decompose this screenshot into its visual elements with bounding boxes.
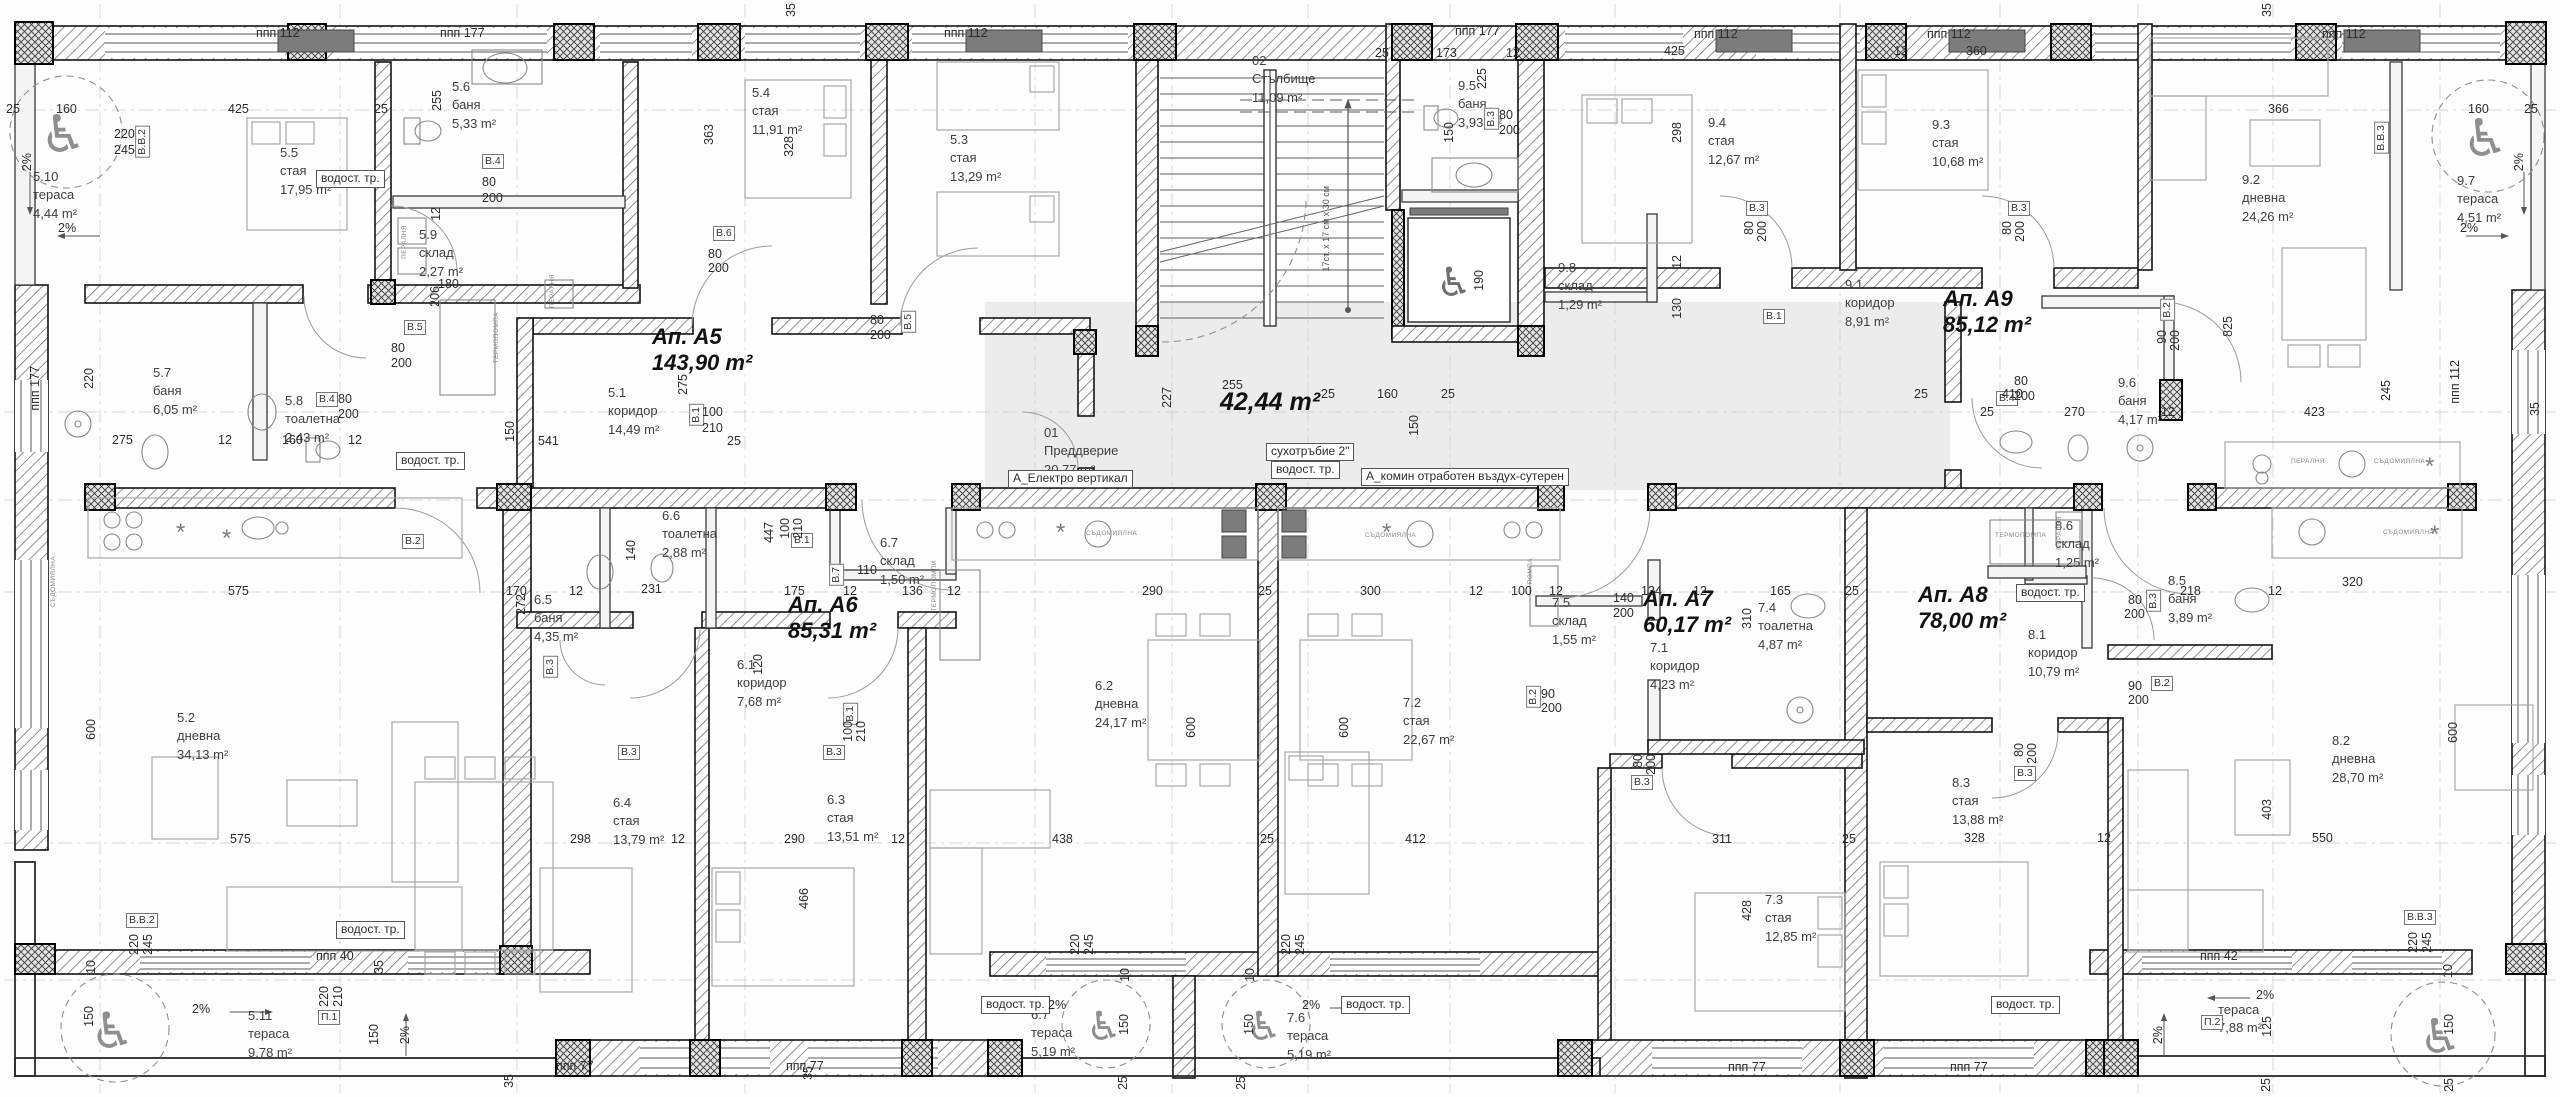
room-label: 5.1 коридор 14,49 m² xyxy=(608,384,659,439)
dimension-label: 80 xyxy=(2000,221,2014,235)
dimension-label: 360 xyxy=(1966,44,1987,58)
shaft-label: ппп 42 xyxy=(2200,949,2238,963)
annotation-box: А_Електро вертикал xyxy=(1008,470,1133,488)
toilet xyxy=(404,118,441,144)
room-label: 02 Стълбище 11,09 m² xyxy=(1252,52,1316,107)
dimension-label: 150 xyxy=(1117,1014,1131,1035)
dimension-label: 35 xyxy=(2528,402,2542,416)
dimension-label: 275 xyxy=(676,374,690,395)
room-label: 7.3 стая 12,85 m² xyxy=(1765,891,1816,946)
room-label: 5.4 стая 11,91 m² xyxy=(752,84,802,139)
dimension-label: 200 xyxy=(2128,693,2149,707)
room-label: 8.1 коридор 10,79 m² xyxy=(2028,626,2079,681)
dimension-label: 245 xyxy=(2420,932,2434,953)
dimension-label: 210 xyxy=(791,518,805,539)
annotation-box: водост. тр. xyxy=(1271,461,1340,479)
dimension-label: 600 xyxy=(1184,717,1198,738)
sofa xyxy=(930,790,1050,954)
dimension-label: 275 xyxy=(112,433,133,447)
dimension-label: 25 xyxy=(1980,405,1994,419)
annotation-box: водост. тр. xyxy=(1991,996,2060,1014)
dimension-label: 200 xyxy=(2124,607,2145,621)
door-tag: B.3 xyxy=(2014,766,2036,781)
dimension-label: 2% xyxy=(2256,988,2274,1002)
dimension-label: 12 xyxy=(843,584,857,598)
dimension-label: 160 xyxy=(1377,387,1398,401)
equipment-label: СЪДОМИЯЛНА xyxy=(1086,530,1137,537)
annotation-box: водост. тр. xyxy=(336,921,405,939)
room-label: 8.3 стая 13,88 m² xyxy=(1952,774,2003,829)
dimension-label: 245 xyxy=(1293,934,1307,955)
dimension-label: 25 xyxy=(1375,46,1389,60)
dimension-label: 300 xyxy=(1360,584,1381,598)
shaft-label: ппп 112 xyxy=(1927,27,1971,41)
dimension-label: 150 xyxy=(503,421,517,442)
door-tag: B.3 xyxy=(2008,201,2030,216)
equipment-label: СЪДОМИЯЛНА xyxy=(50,556,57,607)
dimension-label: 200 xyxy=(870,328,891,342)
dimension-label: 2% xyxy=(192,1002,210,1016)
stairs xyxy=(1160,70,1420,342)
windows xyxy=(15,28,2545,1074)
dimension-label: 2% xyxy=(2151,1026,2165,1044)
shaft-label: ппп 77 xyxy=(1950,1060,1988,1074)
dimension-label: 150 xyxy=(1407,415,1421,436)
dimension-label: 272 xyxy=(514,594,528,615)
dining-table xyxy=(2282,248,2366,367)
annotation-box: водост. тр. xyxy=(1341,996,1410,1014)
dimension-label: 160 xyxy=(282,433,303,447)
door-tag: B.B.2 xyxy=(135,126,150,158)
dimension-label: 12 xyxy=(1506,46,1520,60)
room-label: 9.1 коридор 8,91 m² xyxy=(1845,276,1895,331)
dimension-label: 225 xyxy=(1475,68,1489,89)
elevator: ♿ xyxy=(1408,208,1510,322)
dimension-label: 25 xyxy=(2442,1078,2456,1092)
dimension-label: 200 xyxy=(2168,330,2182,351)
room-label: тераса 7,88 m² xyxy=(2218,1001,2262,1038)
dimension-label: 2% xyxy=(398,1026,412,1044)
dimension-label: 12 xyxy=(2161,405,2175,419)
dining-table xyxy=(1300,614,1412,786)
annotation-box: сухотръбие 2" xyxy=(1266,443,1354,461)
annotation-box: водост. тр. xyxy=(2016,584,2085,602)
stair-step-note: 17ст. х 17 см х 30 см xyxy=(1321,186,1331,272)
room-label: 9.3 стая 10,68 m² xyxy=(1932,116,1983,171)
room-label: 8.2 дневна 28,70 m² xyxy=(2332,732,2383,787)
dimension-label: 366 xyxy=(2268,102,2289,116)
dimension-label: 12 xyxy=(2097,831,2111,845)
dimension-label: 80 xyxy=(338,392,352,406)
svg-text:*: * xyxy=(2425,453,2434,480)
wheelchair-icon: ♿ xyxy=(90,1003,135,1059)
dimension-label: 466 xyxy=(797,888,811,909)
dimension-label: 80 xyxy=(870,313,884,327)
dimension-label: 150 xyxy=(367,1024,381,1045)
dimension-label: 12 xyxy=(1894,44,1908,58)
room-label: 7.4 тоалетна 4,87 m² xyxy=(1758,599,1813,654)
dimension-label: 541 xyxy=(538,434,559,448)
dimension-label: 245 xyxy=(1082,934,1096,955)
door-tag: B.3 xyxy=(1631,775,1653,790)
dimension-label: 270 xyxy=(2064,405,2085,419)
shaft-label: ппп 112 xyxy=(944,26,988,40)
corridor-total-area: 42,44 m² xyxy=(1220,388,1320,417)
dimension-label: 12 xyxy=(348,433,362,447)
dimension-label: 100 xyxy=(841,721,855,742)
dimension-label: 160 xyxy=(56,102,77,116)
door-tag: П.2 xyxy=(2201,1015,2223,1030)
equipment-label: ТЕРМОПОМПА xyxy=(1995,532,2046,539)
door-tag: B.5 xyxy=(404,320,426,335)
room-label: 9.2 дневна 24,26 m² xyxy=(2242,171,2293,226)
door-tag: B.2 xyxy=(2151,676,2173,691)
dimension-label: 25 xyxy=(374,102,388,116)
dimension-label: 90 xyxy=(2155,330,2169,344)
dimension-label: 210 xyxy=(854,721,868,742)
dimension-label: 80 xyxy=(708,247,722,261)
dimension-label: 2% xyxy=(1302,998,1320,1012)
dimension-label: 12 xyxy=(2268,584,2282,598)
door-tag: B.5 xyxy=(901,311,916,333)
dimension-label: 425 xyxy=(228,102,249,116)
dimension-label: 25 xyxy=(2259,1078,2273,1092)
floor-plan-page: .wall{fill:url(#h);stroke:#141414;stroke… xyxy=(0,0,2560,1097)
shaft-label: ппп 177 xyxy=(1455,24,1500,38)
dimension-label: 25 xyxy=(727,434,741,448)
dimension-label: 173 xyxy=(1436,46,1457,60)
dimension-label: 12 xyxy=(947,584,961,598)
dimension-label: 231 xyxy=(641,582,662,596)
room-label: 9.7 тераса 4,51 m² xyxy=(2457,172,2501,227)
equipment-label: ПЕРАЛНЯ xyxy=(2291,458,2325,465)
dimension-label: 12 xyxy=(569,584,583,598)
annotation-box: водост. тр. xyxy=(316,170,385,188)
annotation-box: водост. тр. xyxy=(396,452,465,470)
equipment-label: ТЕРМОПОМПА xyxy=(493,312,500,363)
dimension-label: 206 xyxy=(428,286,442,307)
room-label: 5.6 баня 5,33 m² xyxy=(452,78,496,133)
dimension-label: 175 xyxy=(784,584,805,598)
dimension-label: 140 xyxy=(624,540,638,561)
dimension-label: 150 xyxy=(2442,1014,2456,1035)
door-tag: B.B.2 xyxy=(126,913,158,928)
room-label: 5.9 склад 2,27 m² xyxy=(419,226,463,281)
dimension-label: 12 xyxy=(218,433,232,447)
kitchen-counter xyxy=(1278,508,1560,560)
dimension-label: 447 xyxy=(762,522,776,543)
dimension-label: 575 xyxy=(230,832,251,846)
dimension-label: 2% xyxy=(58,221,76,235)
dimension-label: 245 xyxy=(141,934,155,955)
dimension-label: 80 xyxy=(1742,221,1756,235)
bed xyxy=(1285,752,1369,894)
dimension-label: 12 xyxy=(1549,584,1563,598)
dimension-label: 25 xyxy=(6,102,20,116)
dimension-label: 550 xyxy=(2312,831,2333,845)
dimension-label: 25 xyxy=(1441,387,1455,401)
dimension-label: 35 xyxy=(372,960,386,974)
dimension-label: 200 xyxy=(1613,606,1634,620)
apartment-label: Ап. А6 85,31 m² xyxy=(788,592,876,644)
dimension-label: 328 xyxy=(782,136,796,157)
dimension-label: 25 xyxy=(1914,387,1928,401)
dimension-label: 200 xyxy=(708,261,729,275)
dimension-label: 298 xyxy=(570,832,591,846)
equipment-label: ПЕРАЛНЯ xyxy=(2056,516,2063,550)
shaft-label: ппп 77 xyxy=(556,1059,594,1073)
dimension-label: 35 xyxy=(502,1074,516,1088)
dimension-label: 10 xyxy=(1118,968,1132,982)
shaft-label: ппп 112 xyxy=(2448,360,2462,404)
shaft-label: ппп 177 xyxy=(440,26,485,40)
annotation-box: А_комин отработен въздух-сутерен xyxy=(1361,468,1569,486)
dimension-label: 12 xyxy=(429,207,443,221)
dimension-label: 150 xyxy=(82,1006,96,1027)
dimension-label: 80 xyxy=(2012,743,2026,757)
shaft-label: ппп 177 xyxy=(28,366,42,411)
dimension-label: 165 xyxy=(1770,584,1791,598)
dimension-label: 160 xyxy=(2468,102,2489,116)
dimension-label: 220 xyxy=(127,934,141,955)
dimension-label: 80 xyxy=(1631,754,1645,768)
dimension-label: 2% xyxy=(2460,221,2478,235)
dimension-label: 10 xyxy=(2441,964,2455,978)
dimension-label: 210 xyxy=(702,421,723,435)
door-tag: B.2 xyxy=(402,534,424,549)
room-label: 8.5 баня 3,89 m² xyxy=(2168,572,2212,627)
dimension-label: 35 xyxy=(784,3,798,17)
dimension-label: 200 xyxy=(391,356,412,370)
dimension-label: 12 xyxy=(1670,255,1684,269)
room-label: 6.2 дневна 24,17 m² xyxy=(1095,677,1146,732)
sofa xyxy=(2128,760,2290,952)
dimension-label: 575 xyxy=(228,584,249,598)
door-tag: B.3 xyxy=(1484,108,1499,130)
room-label: 9.4 стая 12,67 m² xyxy=(1708,114,1759,169)
bed xyxy=(937,62,1059,130)
door-tag: B.4 xyxy=(482,154,504,169)
dimension-label: 200 xyxy=(482,191,503,205)
dimension-label: 90 xyxy=(2128,679,2142,693)
dining-table xyxy=(1148,614,1260,786)
door-tag: B.3 xyxy=(543,656,558,678)
dimension-label: 190 xyxy=(1472,270,1486,291)
dimension-label: 220 xyxy=(1279,934,1293,955)
door-tag: B.1 xyxy=(1763,309,1785,324)
room-label: 6.3 стая 13,51 m² xyxy=(827,791,878,846)
apartment-label: Ап. А9 85,12 m² xyxy=(1943,286,2031,338)
dimension-label: 290 xyxy=(1142,584,1163,598)
dimension-label: 10 xyxy=(1243,968,1257,982)
dimension-label: 600 xyxy=(2446,722,2460,743)
dimension-label: 2% xyxy=(2512,153,2526,171)
door-tag: B.B.3 xyxy=(2404,910,2436,925)
door-tag: B.3 xyxy=(823,745,845,760)
door-tag: B.3 xyxy=(1746,201,1768,216)
room-label: 7.6 тераса 5,19 m² xyxy=(1287,1009,1331,1064)
dimension-label: 25 xyxy=(1116,1076,1130,1090)
door-tag: B.3 xyxy=(618,745,640,760)
svg-text:*: * xyxy=(176,519,185,546)
dimension-label: 80 xyxy=(2014,374,2028,388)
dimension-label: 210 xyxy=(331,986,345,1007)
dimension-label: 130 xyxy=(1670,298,1684,319)
equipment-label: ПЕРАЛНЯ xyxy=(401,225,408,259)
dimension-label: 311 xyxy=(1712,832,1732,846)
dimension-label: 25 xyxy=(1321,387,1335,401)
room-label: 6.7 тераса 5,19 m² xyxy=(1031,1006,1075,1061)
dimension-label: 220 xyxy=(114,127,135,141)
dimension-label: 136 xyxy=(902,584,923,598)
equipment-label: ПОМПА xyxy=(1527,558,1534,584)
room-label: 6.6 тоалетна 2,88 m² xyxy=(662,507,717,562)
dimension-label: 220 xyxy=(2406,932,2420,953)
svg-text:*: * xyxy=(222,525,231,552)
dimension-label: 425 xyxy=(1664,44,1685,58)
dimension-label: 403 xyxy=(2260,799,2274,820)
shaft-label: ппп 112 xyxy=(2322,27,2366,41)
dimension-label: 328 xyxy=(1964,831,1985,845)
dimension-label: 220 xyxy=(82,368,96,389)
dimension-label: 25 xyxy=(1234,1076,1248,1090)
dimension-label: 125 xyxy=(2260,1016,2274,1037)
door-tag: B.2 xyxy=(1526,686,1541,708)
shaft-label: ппп 77 xyxy=(1728,1060,1766,1074)
room-label: 5.10 тераса 4,44 m² xyxy=(33,168,77,223)
dimension-label: 428 xyxy=(1740,900,1754,921)
dimension-label: 12 xyxy=(671,832,685,846)
dimension-label: 200 xyxy=(1755,221,1769,242)
door-tag: B.4 xyxy=(316,392,338,407)
wheelchair-icon: ♿ xyxy=(2462,110,2509,168)
dimension-label: 12 xyxy=(891,832,905,846)
wheelchair-icon: ♿ xyxy=(1436,261,1472,305)
room-label: 6.5 баня 4,35 m² xyxy=(534,591,578,646)
dimension-label: 220 xyxy=(1068,934,1082,955)
dimension-label: 600 xyxy=(84,719,98,740)
bed xyxy=(1880,862,2028,976)
dimension-label: 12 xyxy=(1693,584,1707,598)
door-tag: B.7 xyxy=(829,564,844,586)
room-label: 7.1 коридор 4,23 m² xyxy=(1650,639,1700,694)
equipment-label: СЪДОМИЯЛНА xyxy=(2383,529,2434,536)
room-label: 5.7 баня 6,05 m² xyxy=(153,364,197,419)
dimension-label: 255 xyxy=(1222,378,1243,392)
dimension-label: 80 xyxy=(391,341,405,355)
dimension-label: 412 xyxy=(1405,832,1426,846)
dimension-label: 100 xyxy=(702,405,723,419)
room-label: 6.7 склад 1,50 m² xyxy=(880,534,924,589)
dimension-label: 150 xyxy=(1242,1014,1256,1035)
door-tag: B.3 xyxy=(2146,590,2161,612)
equipment-label: СЪДОМИЯЛНА xyxy=(2374,458,2425,465)
equipment-label: СЪДОМИЯЛНА xyxy=(1365,532,1416,539)
room-label: 9.6 баня 4,17 m² xyxy=(2118,374,2162,429)
dimension-label: 825 xyxy=(2221,316,2235,337)
dimension-label: 227 xyxy=(1160,387,1174,408)
room-label: 5.3 стая 13,29 m² xyxy=(950,131,1001,186)
dimension-label: 80 xyxy=(482,175,496,189)
dimension-label: 200 xyxy=(2014,389,2035,403)
dimension-label: 120 xyxy=(751,654,765,675)
room-label: 5.11 тераса 9,78 m² xyxy=(248,1007,292,1062)
dimension-label: 245 xyxy=(2379,380,2393,401)
room-label: 6.4 стая 13,79 m² xyxy=(613,794,664,849)
dimension-label: 200 xyxy=(338,407,359,421)
dimension-label: 100 xyxy=(1511,584,1532,598)
dining-table xyxy=(415,757,553,974)
dimension-label: 25 xyxy=(1260,832,1274,846)
dimension-label: 200 xyxy=(1541,701,1562,715)
svg-text:*: * xyxy=(1056,519,1065,546)
dimension-label: 90 xyxy=(1541,687,1555,701)
interior-walls xyxy=(85,24,2475,1078)
dimension-label: 2% xyxy=(1048,998,1066,1012)
door-tag: B.B.3 xyxy=(2374,122,2389,154)
apartment-label: Ап. А5 143,90 m² xyxy=(652,324,752,376)
room-label: 5.2 дневна 34,13 m² xyxy=(177,709,228,764)
dimension-label: 298 xyxy=(1670,122,1684,143)
dimension-label: 140 xyxy=(1613,591,1634,605)
room-label: 7.5 склад 1,55 m² xyxy=(1552,594,1596,649)
equipment-label: ТЕРМОПОМПИ xyxy=(931,560,938,612)
dimension-label: 25 xyxy=(1258,584,1272,598)
furniture xyxy=(88,38,2533,1011)
dimension-label: 200 xyxy=(1644,754,1658,775)
shaft-label: ппп 77 xyxy=(786,1059,824,1073)
shaft-label: ппп 112 xyxy=(256,26,300,40)
bed xyxy=(1582,95,1692,243)
dimension-label: 245 xyxy=(114,143,135,157)
dimension-label: 255 xyxy=(430,90,444,111)
toilet xyxy=(2068,435,2088,461)
dimension-label: 310 xyxy=(1740,608,1754,629)
dimension-label: 363 xyxy=(702,124,716,145)
dimension-label: 100 xyxy=(778,518,792,539)
dimension-label: 12 xyxy=(1469,584,1483,598)
apartment-label: Ап. А8 78,00 m² xyxy=(1918,582,2006,634)
dimension-label: 438 xyxy=(1052,832,1073,846)
shaft-label: ппп 112 xyxy=(1694,27,1738,41)
dimension-label: 110 xyxy=(857,563,877,577)
dimension-label: 220 xyxy=(317,986,331,1007)
dimension-label: 150 xyxy=(1442,122,1456,143)
dimension-label: 290 xyxy=(784,832,805,846)
room-label: 9.8 склад 1,29 m² xyxy=(1558,259,1602,314)
dimension-label: 200 xyxy=(2025,743,2039,764)
dimension-label: 25 xyxy=(1845,584,1859,598)
dimension-label: 2% xyxy=(20,153,34,171)
dimension-label: 25 xyxy=(2524,102,2538,116)
room-label: 7.2 стая 22,67 m² xyxy=(1403,694,1454,749)
dimension-label: 320 xyxy=(2342,575,2363,589)
dimension-label: 200 xyxy=(2013,221,2027,242)
bed xyxy=(937,192,1059,256)
annotation-box: водост. тр. xyxy=(981,996,1050,1014)
dimension-label: 600 xyxy=(1337,717,1351,738)
shaft-label: ппп 40 xyxy=(316,949,354,963)
dimension-label: 10 xyxy=(84,960,98,974)
dimension-label: 218 xyxy=(2180,584,2201,598)
equipment-label: ПЕРАЛНЯ xyxy=(549,274,556,308)
dimension-label: 25 xyxy=(1842,832,1856,846)
dimension-label: 423 xyxy=(2304,405,2325,419)
door-tag: B.2 xyxy=(2160,299,2175,321)
door-tag: П.1 xyxy=(318,1010,340,1025)
dimension-label: 80 xyxy=(2128,593,2142,607)
door-tag: B.6 xyxy=(713,226,735,241)
